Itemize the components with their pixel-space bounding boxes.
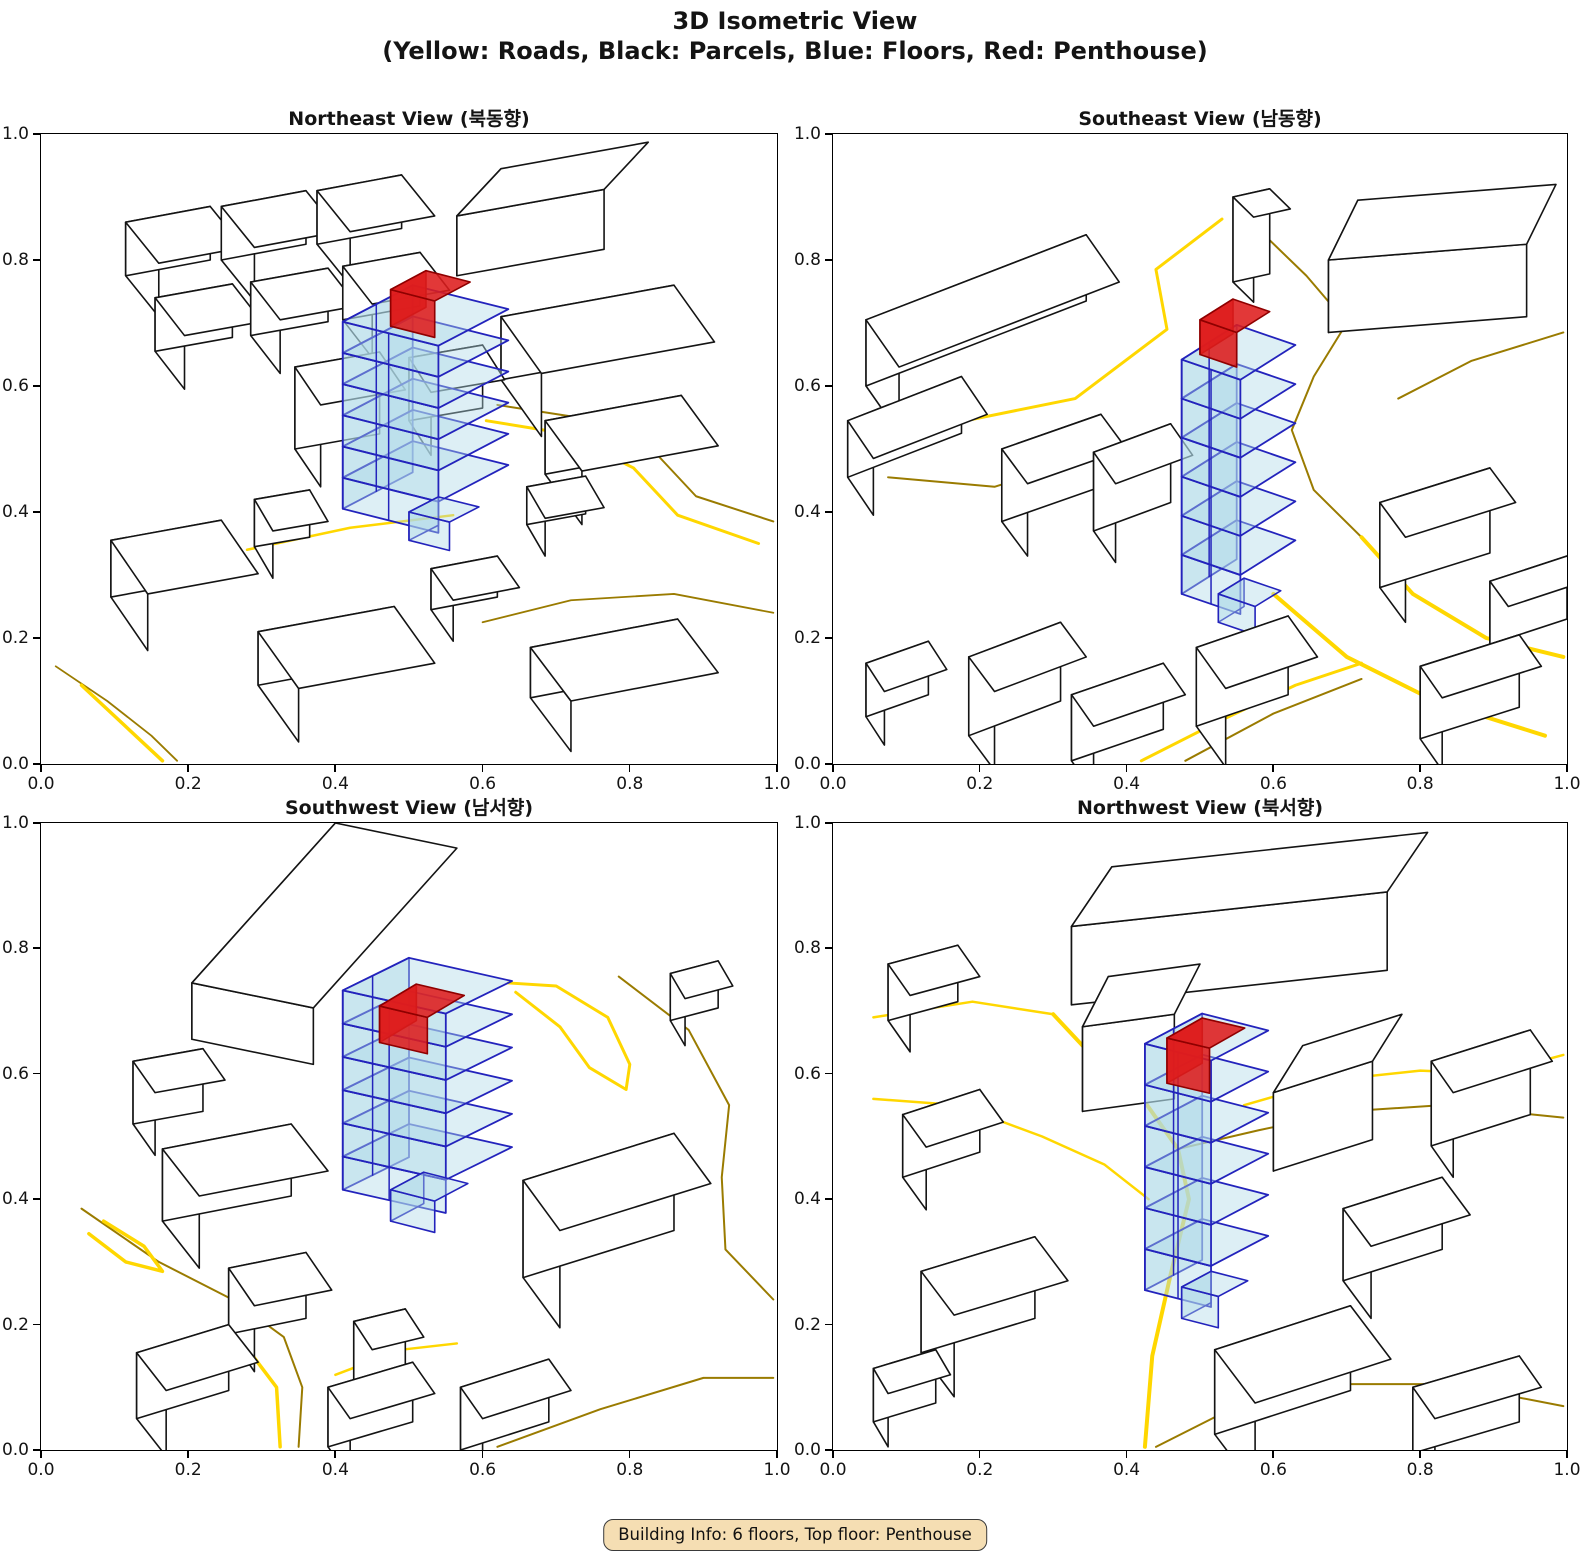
- subplot-southeast: Southeast View (남동향) 0.00.00.20.20.40.40…: [832, 133, 1568, 765]
- y-axis-tick-label: 0.0: [2, 754, 29, 774]
- x-axis-tick: [776, 765, 778, 772]
- x-axis-tick: [1419, 765, 1421, 772]
- y-axis-tick: [825, 1198, 832, 1200]
- y-axis-tick: [825, 1449, 832, 1451]
- y-axis-tick: [33, 385, 40, 387]
- road-line: [89, 1221, 163, 1271]
- x-axis-tick: [40, 1451, 42, 1458]
- road-line: [1398, 332, 1563, 398]
- scene-svg-northeast: [41, 134, 777, 764]
- scene-svg-southeast: [833, 134, 1567, 764]
- x-axis-tick: [482, 1451, 484, 1458]
- scene-svg-southwest: [41, 823, 777, 1450]
- parcel-block: [873, 1350, 950, 1394]
- figure-title: 3D Isometric View (Yellow: Roads, Black:…: [0, 6, 1590, 66]
- subplot-title-southwest: Southwest View (남서향): [41, 793, 777, 820]
- x-axis-tick: [1126, 765, 1128, 772]
- road-line: [508, 983, 629, 1090]
- x-axis-tick: [1419, 1451, 1421, 1458]
- y-axis-tick: [825, 822, 832, 824]
- subplot-title-southeast: Southeast View (남동향): [833, 104, 1567, 131]
- x-axis-tick-label: 0.2: [175, 774, 202, 794]
- x-axis-tick: [334, 765, 336, 772]
- x-axis-tick-label: 0.0: [819, 1460, 846, 1480]
- y-axis-tick-label: 0.4: [2, 1189, 29, 1209]
- y-axis-tick-label: 0.8: [2, 938, 29, 958]
- x-axis-tick-label: 0.2: [175, 1460, 202, 1480]
- x-axis-tick-label: 0.0: [27, 1460, 54, 1480]
- y-axis-tick-label: 0.8: [2, 250, 29, 270]
- x-axis-tick-label: 0.6: [1260, 774, 1287, 794]
- y-axis-tick-label: 0.0: [794, 754, 821, 774]
- y-axis-tick: [33, 259, 40, 261]
- x-axis-tick-label: 1.0: [763, 774, 790, 794]
- y-axis-tick-label: 0.4: [2, 502, 29, 522]
- x-axis-tick-label: 0.6: [1260, 1460, 1287, 1480]
- y-axis-tick-label: 0.6: [794, 1064, 821, 1084]
- y-axis-tick-label: 1.0: [2, 813, 29, 833]
- x-axis-tick: [1566, 1451, 1568, 1458]
- x-axis-tick: [629, 1451, 631, 1458]
- x-axis-tick-label: 0.8: [1407, 774, 1434, 794]
- x-axis-tick: [979, 1451, 981, 1458]
- figure-title-line2: (Yellow: Roads, Black: Parcels, Blue: Fl…: [0, 36, 1590, 66]
- y-axis-tick: [825, 637, 832, 639]
- road-line: [483, 594, 774, 622]
- x-axis-tick: [1272, 1451, 1274, 1458]
- x-axis-tick: [1126, 1451, 1128, 1458]
- y-axis-tick: [33, 822, 40, 824]
- x-axis-tick: [979, 765, 981, 772]
- y-axis-tick: [33, 1449, 40, 1451]
- x-axis-tick-label: 0.8: [616, 1460, 643, 1480]
- road-line: [81, 685, 162, 761]
- road-line: [56, 666, 177, 761]
- x-axis-tick: [832, 1451, 834, 1458]
- y-axis-tick: [825, 1073, 832, 1075]
- subplot-title-northwest: Northwest View (북서향): [833, 793, 1567, 820]
- y-axis-tick: [33, 1198, 40, 1200]
- y-axis-tick: [825, 385, 832, 387]
- x-axis-tick-label: 0.0: [819, 774, 846, 794]
- y-axis-tick: [33, 133, 40, 135]
- x-axis-tick: [832, 765, 834, 772]
- y-axis-tick-label: 1.0: [794, 813, 821, 833]
- x-axis-tick-label: 1.0: [1553, 774, 1580, 794]
- subplot-northwest: Northwest View (북서향) 0.00.00.20.20.40.40…: [832, 822, 1568, 1451]
- y-axis-tick-label: 0.2: [794, 628, 821, 648]
- y-axis-tick-label: 0.2: [2, 628, 29, 648]
- x-axis-tick-label: 1.0: [763, 1460, 790, 1480]
- subplot-title-northeast: Northeast View (북동향): [41, 104, 777, 131]
- y-axis-tick-label: 0.6: [2, 1064, 29, 1084]
- x-axis-tick-label: 0.4: [1113, 774, 1140, 794]
- x-axis-tick: [40, 765, 42, 772]
- y-axis-tick-label: 1.0: [794, 124, 821, 144]
- y-axis-tick: [825, 511, 832, 513]
- y-axis-tick: [33, 637, 40, 639]
- subplot-southwest: Southwest View (남서향) 0.00.00.20.20.40.40…: [40, 822, 778, 1451]
- y-axis-tick-label: 0.4: [794, 502, 821, 522]
- y-axis-tick: [825, 1324, 832, 1326]
- figure-title-line1: 3D Isometric View: [0, 6, 1590, 36]
- y-axis-tick-label: 0.0: [794, 1440, 821, 1460]
- y-axis-tick-label: 0.0: [2, 1440, 29, 1460]
- x-axis-tick-label: 1.0: [1553, 1460, 1580, 1480]
- y-axis-tick-label: 0.6: [2, 376, 29, 396]
- x-axis-tick-label: 0.6: [469, 1460, 496, 1480]
- y-axis-tick-label: 0.2: [2, 1315, 29, 1335]
- x-axis-tick: [334, 1451, 336, 1458]
- x-axis-tick-label: 0.2: [966, 1460, 993, 1480]
- x-axis-tick-label: 0.6: [469, 774, 496, 794]
- road-line: [619, 977, 774, 1300]
- y-axis-tick-label: 0.6: [794, 376, 821, 396]
- parcel-block: [501, 285, 714, 373]
- x-axis-tick-label: 0.4: [322, 774, 349, 794]
- y-axis-tick: [825, 259, 832, 261]
- x-axis-tick-label: 0.8: [1407, 1460, 1434, 1480]
- y-axis-tick-label: 0.2: [794, 1315, 821, 1335]
- x-axis-tick-label: 0.0: [27, 774, 54, 794]
- y-axis-tick-label: 1.0: [2, 124, 29, 144]
- y-axis-tick: [33, 947, 40, 949]
- x-axis-tick: [482, 765, 484, 772]
- y-axis-tick-label: 0.8: [794, 250, 821, 270]
- x-axis-tick-label: 0.4: [322, 1460, 349, 1480]
- x-axis-tick: [187, 765, 189, 772]
- x-axis-tick: [1566, 765, 1568, 772]
- y-axis-tick: [825, 133, 832, 135]
- x-axis-tick: [187, 1451, 189, 1458]
- subplot-northeast: Northeast View (북동향) 0.00.00.20.20.40.40…: [40, 133, 778, 765]
- building-info-badge: Building Info: 6 floors, Top floor: Pent…: [603, 1519, 987, 1551]
- x-axis-tick-label: 0.4: [1113, 1460, 1140, 1480]
- y-axis-tick: [825, 763, 832, 765]
- x-axis-tick-label: 0.2: [966, 774, 993, 794]
- scene-svg-northwest: [833, 823, 1567, 1450]
- y-axis-tick: [825, 947, 832, 949]
- y-axis-tick: [33, 763, 40, 765]
- y-axis-tick: [33, 1073, 40, 1075]
- x-axis-tick: [1272, 765, 1274, 772]
- y-axis-tick: [33, 1324, 40, 1326]
- x-axis-tick-label: 0.8: [616, 774, 643, 794]
- x-axis-tick: [629, 765, 631, 772]
- y-axis-tick-label: 0.8: [794, 938, 821, 958]
- figure-canvas: 3D Isometric View (Yellow: Roads, Black:…: [0, 0, 1590, 1560]
- y-axis-tick-label: 0.4: [794, 1189, 821, 1209]
- x-axis-tick: [776, 1451, 778, 1458]
- y-axis-tick: [33, 511, 40, 513]
